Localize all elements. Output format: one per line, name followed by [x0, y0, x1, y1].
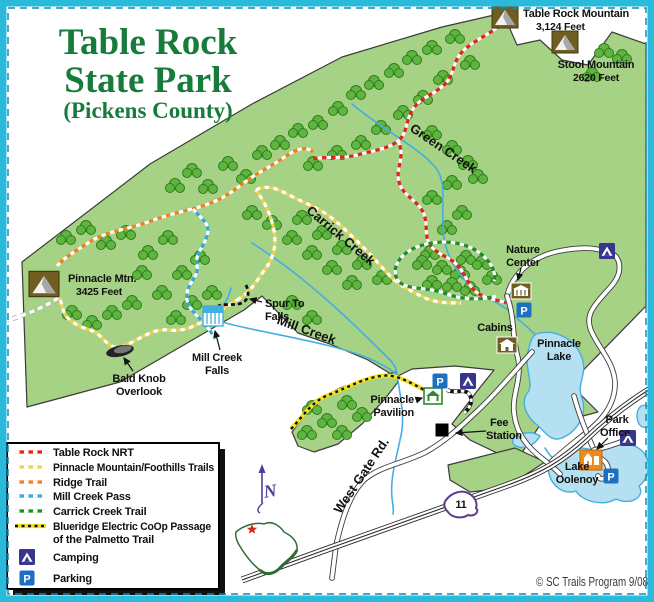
camping-icon: [19, 549, 35, 565]
table-rock-mountain-elev: 3,124 Feet: [536, 21, 585, 33]
mill-creek-falls-label-1: Mill Creek: [192, 352, 243, 364]
bald-knob-label-2: Overlook: [116, 386, 163, 398]
fee-station-icon: [436, 424, 449, 437]
legend-label: Parking: [53, 573, 92, 585]
camping-icon-pavilion: [460, 373, 476, 389]
cabins-icon: [497, 337, 517, 353]
lake-oolenoy-label-2: Oolenoy: [556, 474, 600, 486]
park-office-label-2: Office: [600, 427, 630, 439]
pinnacle-pavilion-label-1: Pinnacle: [370, 394, 414, 406]
lake-oolenoy-label-1: Lake: [565, 461, 589, 473]
stool-mountain-elev: 2620 Feet: [573, 72, 620, 84]
legend-label: Mill Creek Pass: [53, 491, 131, 503]
nature-center-label-2: Center: [506, 257, 541, 269]
spur-to-falls-label-2: Falls: [265, 311, 289, 323]
legend-label: Camping: [53, 552, 99, 564]
nature-center-icon: [511, 283, 531, 299]
bald-knob-label-1: Bald Knob: [112, 373, 166, 385]
stool-mountain-label: Stool Mountain: [558, 59, 635, 71]
cabins-label: Cabins: [477, 322, 513, 334]
legend-label: Blueridge Electric CoOp Passage: [53, 521, 211, 533]
title-line-3: (Pickens County): [63, 98, 232, 123]
mill-creek-falls-label-2: Falls: [205, 365, 229, 377]
camping-icon-north: [599, 243, 615, 259]
fee-station-label-1: Fee: [490, 417, 508, 429]
pinnacle-mountain-icon: [29, 271, 59, 296]
table-rock-mountain-label: Table Rock Mountain: [523, 8, 629, 20]
credit-line: © SC Trails Program 9/08: [536, 575, 648, 589]
highway-number: 11: [455, 499, 466, 511]
stool-mountain-icon: [552, 31, 578, 53]
spur-to-falls-label-1: Spur To: [265, 298, 305, 310]
legend-label: Pinnacle Mountain/Foothills Trails: [53, 462, 214, 474]
pinnacle-lake-label-1: Pinnacle: [537, 338, 581, 350]
park-office-label-1: Park: [605, 414, 629, 426]
legend-label: of the Palmetto Trail: [53, 534, 154, 546]
page-title: Table Rock State Park (Pickens County): [59, 22, 238, 123]
map-frame: P: [0, 0, 654, 602]
pinnacle-lake-label-2: Lake: [547, 351, 571, 363]
table-rock-mountain-icon: [492, 6, 518, 28]
legend: Table Rock NRT Pinnacle Mountain/Foothil…: [7, 443, 225, 595]
nature-center-label-1: Nature: [506, 244, 540, 256]
parking-icon-pavilion: [433, 374, 448, 389]
pinnacle-mountain-elev: 3425 Feet: [76, 286, 123, 298]
parking-icon: [20, 571, 35, 586]
legend-label: Ridge Trail: [53, 477, 107, 489]
parking-icon-oolenoy: [604, 469, 619, 484]
highway-11-shield: 11: [444, 492, 477, 518]
legend-label: Table Rock NRT: [53, 447, 134, 459]
legend-item-camping: Camping: [19, 549, 99, 565]
legend-label: Carrick Creek Trail: [53, 506, 147, 518]
legend-item-parking: Parking: [20, 571, 92, 586]
mill-creek-falls-icon: [203, 306, 223, 326]
parking-icon-nature-center: [517, 303, 532, 318]
pavilion-icon: [424, 388, 442, 404]
pinnacle-pavilion-label-2: Pavilion: [373, 407, 414, 419]
pinnacle-mountain-label: Pinnacle Mtn.: [68, 273, 136, 285]
title-line-1: Table Rock: [59, 22, 238, 63]
title-line-2: State Park: [64, 60, 232, 101]
fee-station-label-2: Station: [486, 430, 522, 442]
